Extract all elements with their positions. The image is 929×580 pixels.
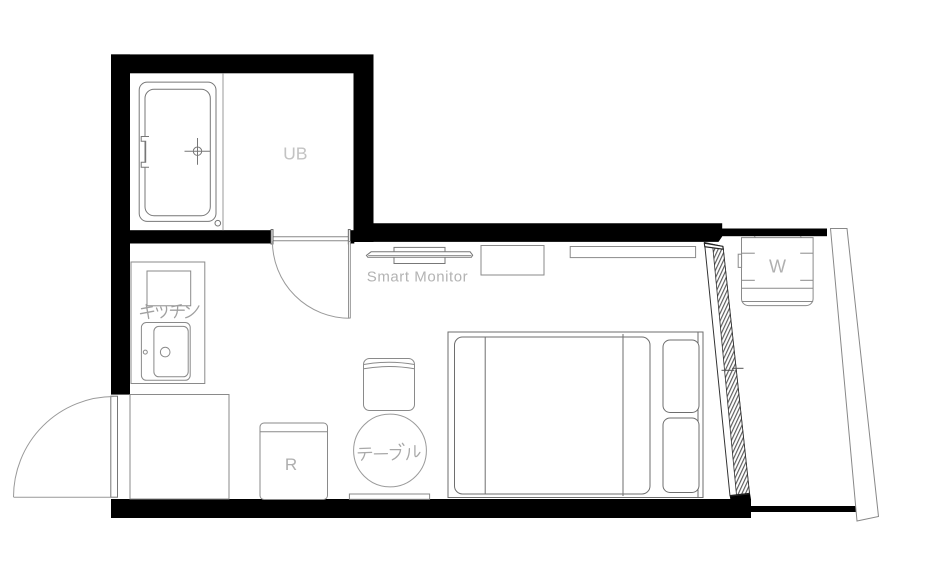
- svg-text:W: W: [769, 256, 786, 276]
- svg-text:Smart Monitor: Smart Monitor: [367, 269, 468, 286]
- svg-text:UB: UB: [283, 144, 307, 164]
- svg-text:R: R: [285, 455, 297, 474]
